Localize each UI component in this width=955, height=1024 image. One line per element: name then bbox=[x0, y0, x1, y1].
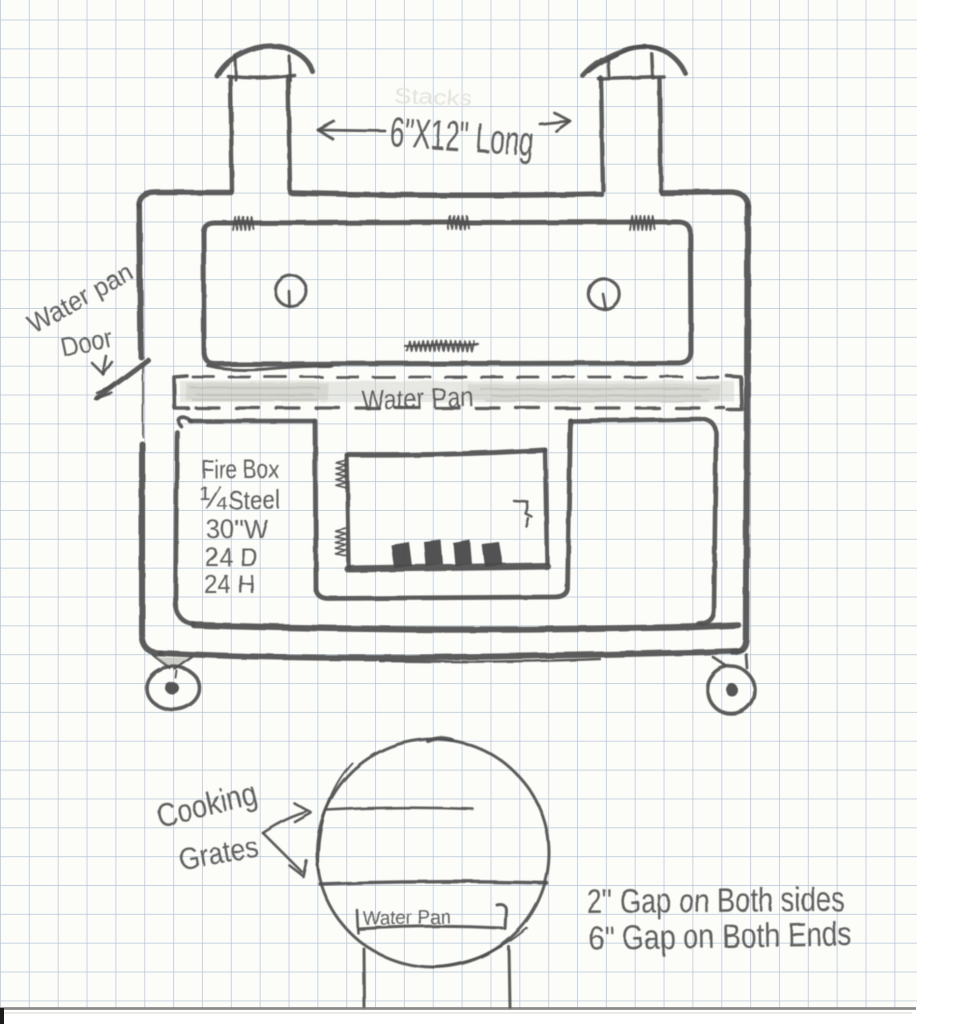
svg-text:Steel: Steel bbox=[228, 485, 281, 515]
svg-text:24 D: 24 D bbox=[205, 542, 258, 572]
svg-text:Stacks: Stacks bbox=[394, 83, 473, 111]
svg-text:¼: ¼ bbox=[200, 480, 228, 516]
svg-text:Water Pan: Water Pan bbox=[361, 381, 474, 416]
svg-text:30"W: 30"W bbox=[206, 514, 268, 544]
svg-text:6"X12" Long: 6"X12" Long bbox=[388, 108, 535, 165]
svg-text:6" Gap on Both Ends: 6" Gap on Both Ends bbox=[588, 915, 852, 958]
svg-text:24 H: 24 H bbox=[204, 569, 255, 599]
svg-text:2" Gap on Both sides: 2" Gap on Both sides bbox=[587, 881, 845, 921]
svg-text:Water Pan: Water Pan bbox=[363, 906, 451, 930]
